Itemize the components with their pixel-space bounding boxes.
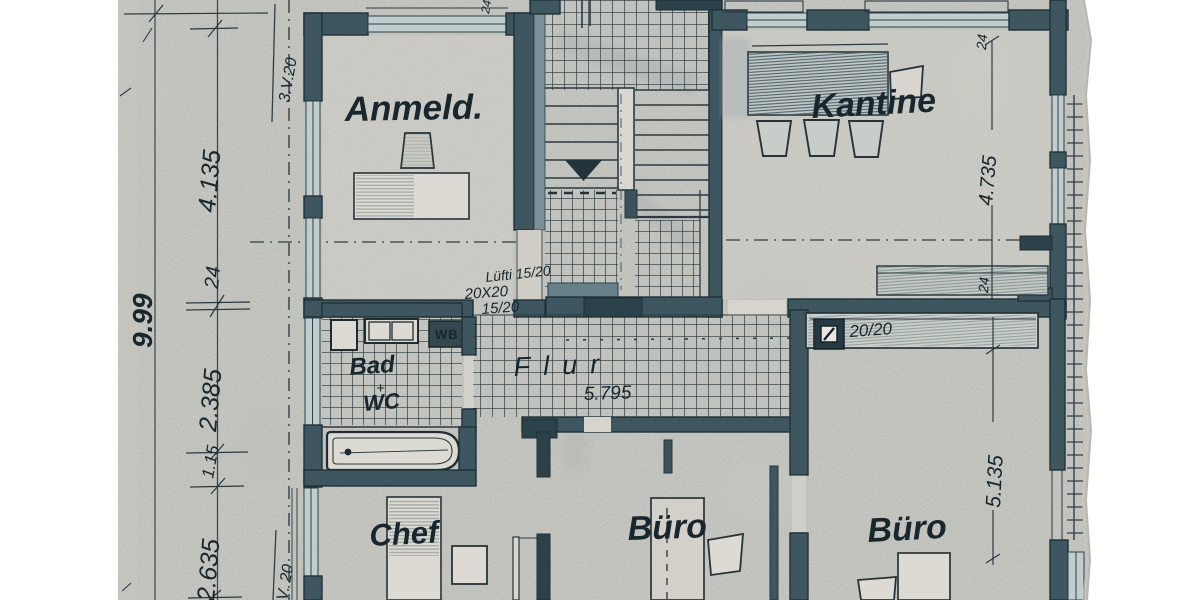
svg-text:24: 24 xyxy=(201,265,225,290)
svg-text:WB: WB xyxy=(435,327,459,342)
svg-text:4.135: 4.135 xyxy=(193,149,226,214)
svg-text:5.135: 5.135 xyxy=(982,454,1008,508)
svg-text:Kantine: Kantine xyxy=(810,82,937,126)
svg-text:9.99: 9.99 xyxy=(127,293,158,348)
svg-text:2.385: 2.385 xyxy=(194,368,227,434)
svg-text:4.735: 4.735 xyxy=(975,154,1001,207)
svg-text:WC: WC xyxy=(362,388,402,416)
svg-text:Anmeld.: Anmeld. xyxy=(343,88,483,129)
svg-text:Büro: Büro xyxy=(866,508,947,550)
svg-text:Chef: Chef xyxy=(369,514,442,553)
svg-text:Büro: Büro xyxy=(627,507,708,548)
svg-text:2.635: 2.635 xyxy=(192,538,225,600)
svg-text:Flur: Flur xyxy=(513,349,612,382)
svg-text:5.795: 5.795 xyxy=(583,382,632,405)
svg-text:24: 24 xyxy=(975,276,992,294)
svg-text:20/20: 20/20 xyxy=(848,319,893,341)
svg-text:Bad: Bad xyxy=(349,351,397,381)
svg-text:24: 24 xyxy=(973,33,990,51)
